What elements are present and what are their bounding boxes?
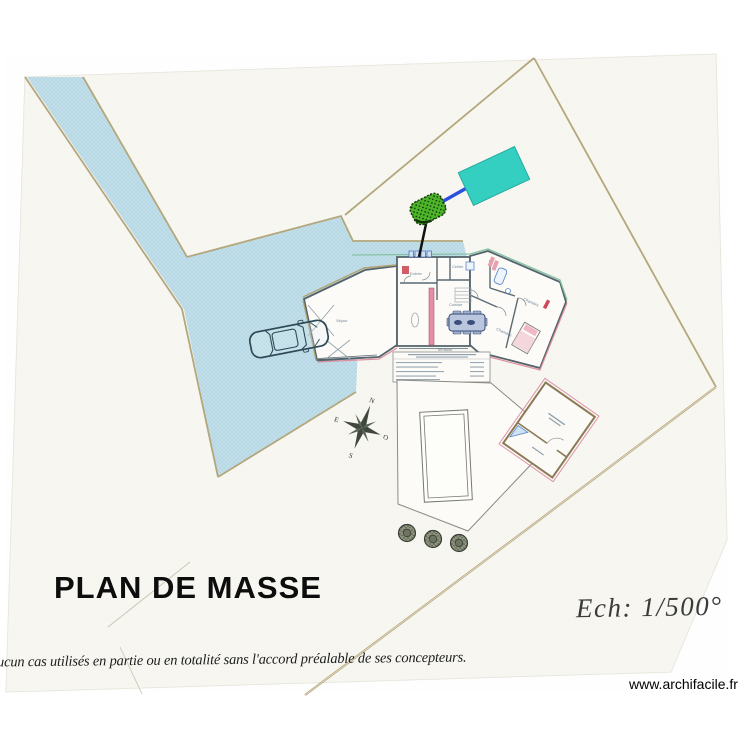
pink-wall-highlight <box>429 288 434 345</box>
page-title: PLAN DE MASSE <box>54 570 322 606</box>
label-entry: Entrée <box>410 271 423 276</box>
site-plan-canvas: Séjour Entrée Cellier Cuisine Chambre Ch… <box>0 0 750 750</box>
label-kitchen: Cuisine <box>449 302 463 307</box>
label-terrace: Terrasse <box>437 347 453 352</box>
scale-label: Ech: 1/500° <box>576 591 723 625</box>
dining-table <box>447 311 487 334</box>
surface-legend-table <box>393 352 490 382</box>
label-storage: Cellier <box>452 264 464 269</box>
label-living: Séjour <box>336 318 348 323</box>
watermark-url: www.archifacile.fr <box>629 676 738 692</box>
plan-de-masse-document: Séjour Entrée Cellier Cuisine Chambre Ch… <box>0 0 750 750</box>
swimming-pool <box>420 410 473 502</box>
